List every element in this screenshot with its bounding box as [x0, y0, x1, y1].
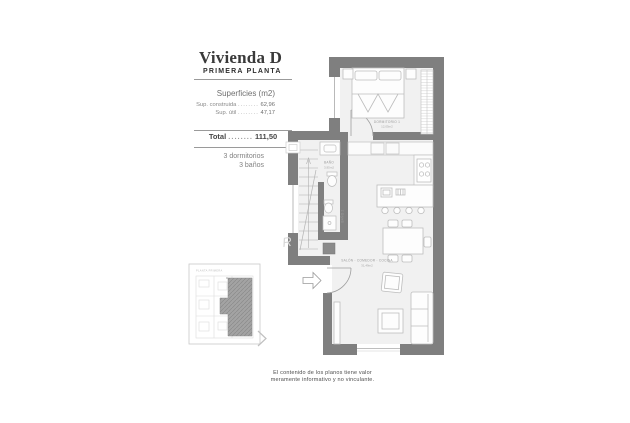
floor-plan: R DORMITORIO 1 12,05m2 BAÑO 3,95m2 BAÑO …	[0, 0, 630, 423]
room-label-bath2: BAÑO 2	[340, 209, 345, 222]
coffee-table	[378, 309, 403, 333]
bed	[352, 68, 404, 118]
wardrobe	[421, 70, 433, 134]
keyplan: PLANTA PRIMERA	[189, 264, 266, 346]
keyplan-caption: PLANTA PRIMERA	[196, 269, 223, 273]
armchair	[381, 272, 403, 293]
washer-unit	[323, 243, 335, 254]
room-area-bath: 3,95m2	[324, 166, 334, 170]
disclaimer-line: El contenido de los planos tiene valor	[235, 370, 410, 377]
room-area-living: 31,49m2	[361, 264, 373, 268]
disclaimer-line: meramente informativo y no vinculante.	[235, 377, 410, 384]
room-label-bedroom: DORMITORIO 1	[374, 120, 400, 124]
entrance-arrow-icon	[303, 273, 321, 289]
stove	[417, 159, 431, 182]
disclaimer: El contenido de los planos tiene valor m…	[235, 370, 410, 384]
ac-unit	[286, 142, 300, 153]
room-label-living: SALÓN - COMEDOR - COCINA	[341, 258, 393, 263]
room-label-bath: BAÑO	[324, 160, 334, 165]
room-area-bedroom: 12,05m2	[381, 125, 393, 129]
floorplan-sheet: Vivienda D PRIMERA PLANTA Superficies (m…	[0, 0, 630, 423]
tv-bench	[334, 302, 340, 344]
sofa	[411, 292, 433, 344]
